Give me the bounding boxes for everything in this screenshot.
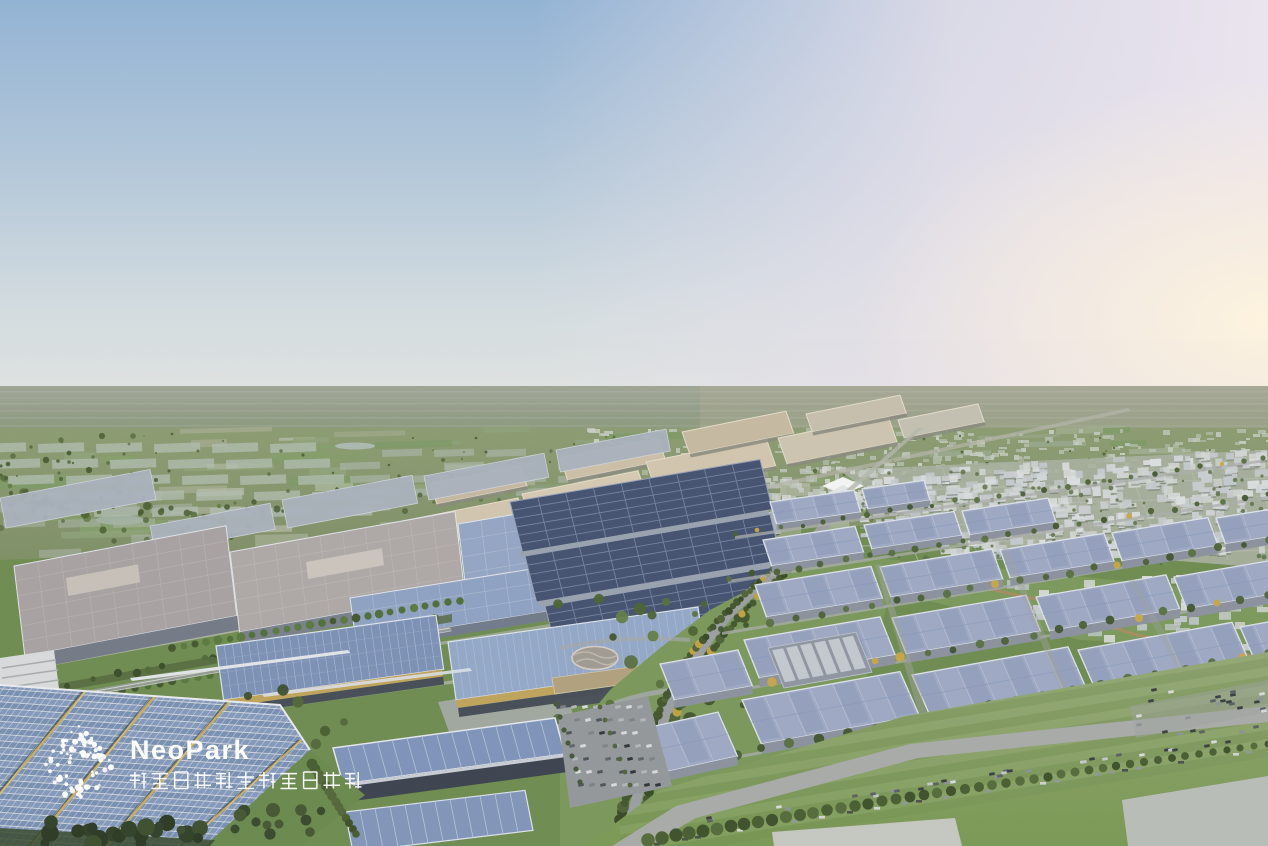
svg-text:NeoPark: NeoPark: [130, 735, 250, 765]
